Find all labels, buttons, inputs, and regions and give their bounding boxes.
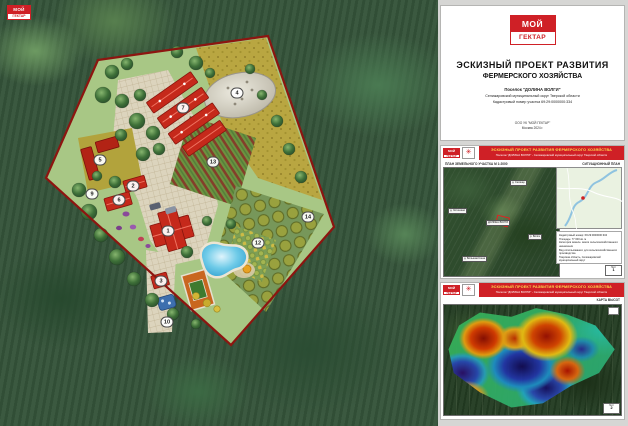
compass-emblem-icon: ✳ [462, 284, 475, 296]
plan-marker: 9 [86, 189, 99, 200]
plan-marker: 13 [207, 157, 220, 168]
caption-strip: ПЛАН ЗЕМЕЛЬНОГО УЧАСТКА М 1:2000 СИТУАЦИ… [441, 160, 624, 167]
brand-logo-bottom: ГЕКТАР [511, 32, 555, 43]
plan-marker: 14 [302, 212, 315, 223]
city-year-line: Москва 2024 г. [441, 126, 624, 131]
sheet-number: 2 [604, 407, 619, 411]
header-subtitle: Поселок "ДОЛИНА ВОЛГИ" - Селижаровский м… [479, 290, 624, 294]
header-bar: ЭСКИЗНЫЙ ПРОЕКТ РАЗВИТИЯ ФЕРМЕРСКОГО ХОЗ… [479, 146, 624, 160]
brand-logo-top: МОЙ [8, 6, 30, 14]
brand-logo-top: МОЙ [511, 16, 555, 32]
plan-scale-caption: ПЛАН ЗЕМЕЛЬНОГО УЧАСТКА М 1:2000 [445, 162, 508, 166]
info-line: Тверская область, Селижаровский муниципа… [559, 256, 619, 263]
location-dot [581, 196, 585, 200]
header-logos: МОЙ ГЕКТАР ✳ [441, 283, 479, 297]
situational-map [556, 167, 622, 229]
scale-box [608, 307, 619, 315]
plan-marker: 6 [113, 195, 126, 206]
map-label: ДОЛИНА ВОЛГИ [486, 220, 510, 226]
master-plan-drawing [0, 0, 440, 426]
settlement-name: Поселок "ДОЛИНА ВОЛГИ" [441, 87, 624, 92]
map-label: д. Большая Коша [462, 256, 487, 262]
title-footer: ООО УК "МОЙ ГЕКТАР" Москва 2024 г. [441, 121, 624, 131]
height-map-caption: КАРТА ВЫСОТ [441, 297, 624, 304]
satellite-map: д. Хотошино д. Селище ДОЛИНА ВОЛГИ р. Во… [443, 167, 560, 277]
header-title: ЭСКИЗНЫЙ ПРОЕКТ РАЗВИТИЯ ФЕРМЕРСКОГО ХОЗ… [479, 148, 624, 152]
info-line: Категория земель: земли сельскохозяйстве… [559, 241, 619, 248]
elevation-heat-overlay [445, 306, 620, 414]
plan-marker: 7 [177, 103, 190, 114]
map-label: д. Хотошино [448, 208, 467, 214]
plan-marker: 10 [161, 317, 174, 328]
sheet-number-box: Лист 1 [605, 265, 622, 276]
plan-marker: 2 [127, 181, 140, 192]
cadastre-line: Кадастровый номер участка 69:29:0000000:… [441, 100, 624, 104]
brand-logo: МОЙ ГЕКТАР [510, 15, 556, 45]
brand-logo-bottom: ГЕКТАР [8, 14, 30, 19]
project-title-line2: ФЕРМЕРСКОГО ХОЗЯЙСТВА [441, 73, 624, 80]
brand-logo-bottom: ГЕКТАР [444, 155, 459, 159]
map-label: р. Волга [528, 234, 542, 240]
header-logos: МОЙ ГЕКТАР ✳ [441, 146, 479, 160]
satellite-background: МОЙ ГЕКТАР [0, 0, 440, 426]
plan-marker: 5 [94, 155, 107, 166]
plan-marker: 4 [231, 88, 244, 99]
plan-marker: 1 [162, 226, 175, 237]
sheet-number: 1 [606, 269, 621, 273]
parcel-info-block: Кадастровый номер: 69:29:0000000:334 Пло… [556, 231, 622, 264]
plot-plan-sheet: МОЙ ГЕКТАР ✳ ЭСКИЗНЫЙ ПРОЕКТ РАЗВИТИЯ ФЕ… [440, 145, 625, 279]
title-sheet: МОЙ ГЕКТАР ЭСКИЗНЫЙ ПРОЕКТ РАЗВИТИЯ ФЕРМ… [440, 5, 625, 141]
brand-logo-mini: МОЙ ГЕКТАР [443, 285, 460, 295]
sheet-header: МОЙ ГЕКТАР ✳ ЭСКИЗНЫЙ ПРОЕКТ РАЗВИТИЯ ФЕ… [441, 146, 624, 160]
info-line: Вид использования: для сельскохозяйствен… [559, 249, 619, 256]
corner-brand-logo: МОЙ ГЕКТАР [7, 5, 31, 20]
screenshot-stage: МОЙ ГЕКТАР [0, 0, 628, 426]
brand-logo-mini: МОЙ ГЕКТАР [443, 148, 460, 158]
map-label: д. Селище [510, 180, 527, 186]
header-subtitle: Поселок "ДОЛИНА ВОЛГИ" - Селижаровский м… [479, 153, 624, 157]
compass-emblem-icon: ✳ [462, 147, 475, 159]
situational-plan-caption: СИТУАЦИОННЫЙ ПЛАН [582, 162, 620, 166]
plot-plan-body: д. Хотошино д. Селище ДОЛИНА ВОЛГИ р. Во… [443, 167, 622, 277]
header-bar: ЭСКИЗНЫЙ ПРОЕКТ РАЗВИТИЯ ФЕРМЕРСКОГО ХОЗ… [479, 283, 624, 297]
brand-logo-bottom: ГЕКТАР [444, 292, 459, 296]
sheet-header: МОЙ ГЕКТАР ✳ ЭСКИЗНЫЙ ПРОЕКТ РАЗВИТИЯ ФЕ… [441, 283, 624, 297]
district-line: Селижаровский муниципальный округ Тверск… [441, 94, 624, 98]
sheets-panel: МОЙ ГЕКТАР ЭСКИЗНЫЙ ПРОЕКТ РАЗВИТИЯ ФЕРМ… [438, 0, 628, 426]
plan-marker: 12 [252, 238, 265, 249]
height-map-sheet: МОЙ ГЕКТАР ✳ ЭСКИЗНЫЙ ПРОЕКТ РАЗВИТИЯ ФЕ… [440, 282, 625, 420]
project-title-line1: ЭСКИЗНЫЙ ПРОЕКТ РАЗВИТИЯ [441, 60, 624, 70]
height-map: Лист 2 [443, 304, 622, 416]
header-title: ЭСКИЗНЫЙ ПРОЕКТ РАЗВИТИЯ ФЕРМЕРСКОГО ХОЗ… [479, 285, 624, 289]
plan-marker: 3 [155, 276, 168, 287]
sheet-number-box: Лист 2 [603, 403, 620, 414]
situational-map-drawing [557, 168, 623, 230]
